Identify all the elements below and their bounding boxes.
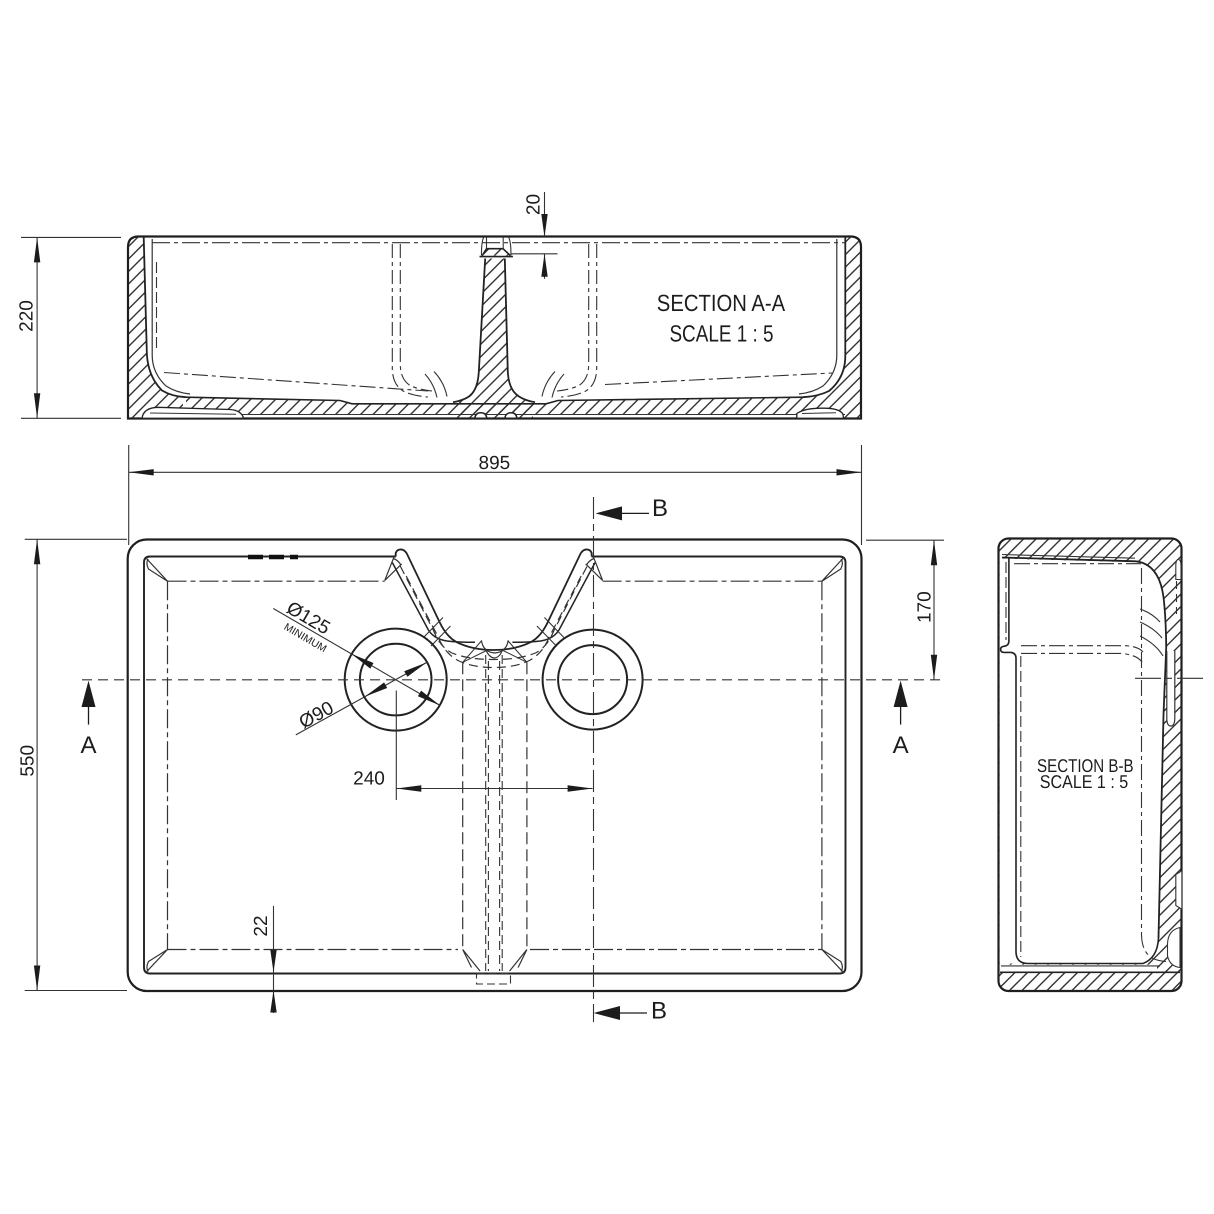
svg-text:A: A: [893, 732, 909, 759]
svg-text:B: B: [651, 998, 667, 1025]
svg-text:220: 220: [17, 300, 38, 332]
svg-text:20: 20: [524, 194, 545, 215]
svg-text:SECTION A-A: SECTION A-A: [657, 290, 786, 316]
svg-text:B: B: [652, 495, 668, 522]
svg-text:895: 895: [479, 453, 511, 474]
svg-text:A: A: [80, 732, 96, 759]
svg-text:170: 170: [914, 591, 935, 623]
svg-text:SCALE 1 : 5: SCALE 1 : 5: [669, 321, 773, 347]
svg-text:SCALE 1 : 5: SCALE 1 : 5: [1040, 771, 1128, 792]
svg-text:240: 240: [353, 769, 385, 790]
svg-text:22: 22: [251, 915, 272, 936]
svg-text:550: 550: [17, 745, 38, 777]
